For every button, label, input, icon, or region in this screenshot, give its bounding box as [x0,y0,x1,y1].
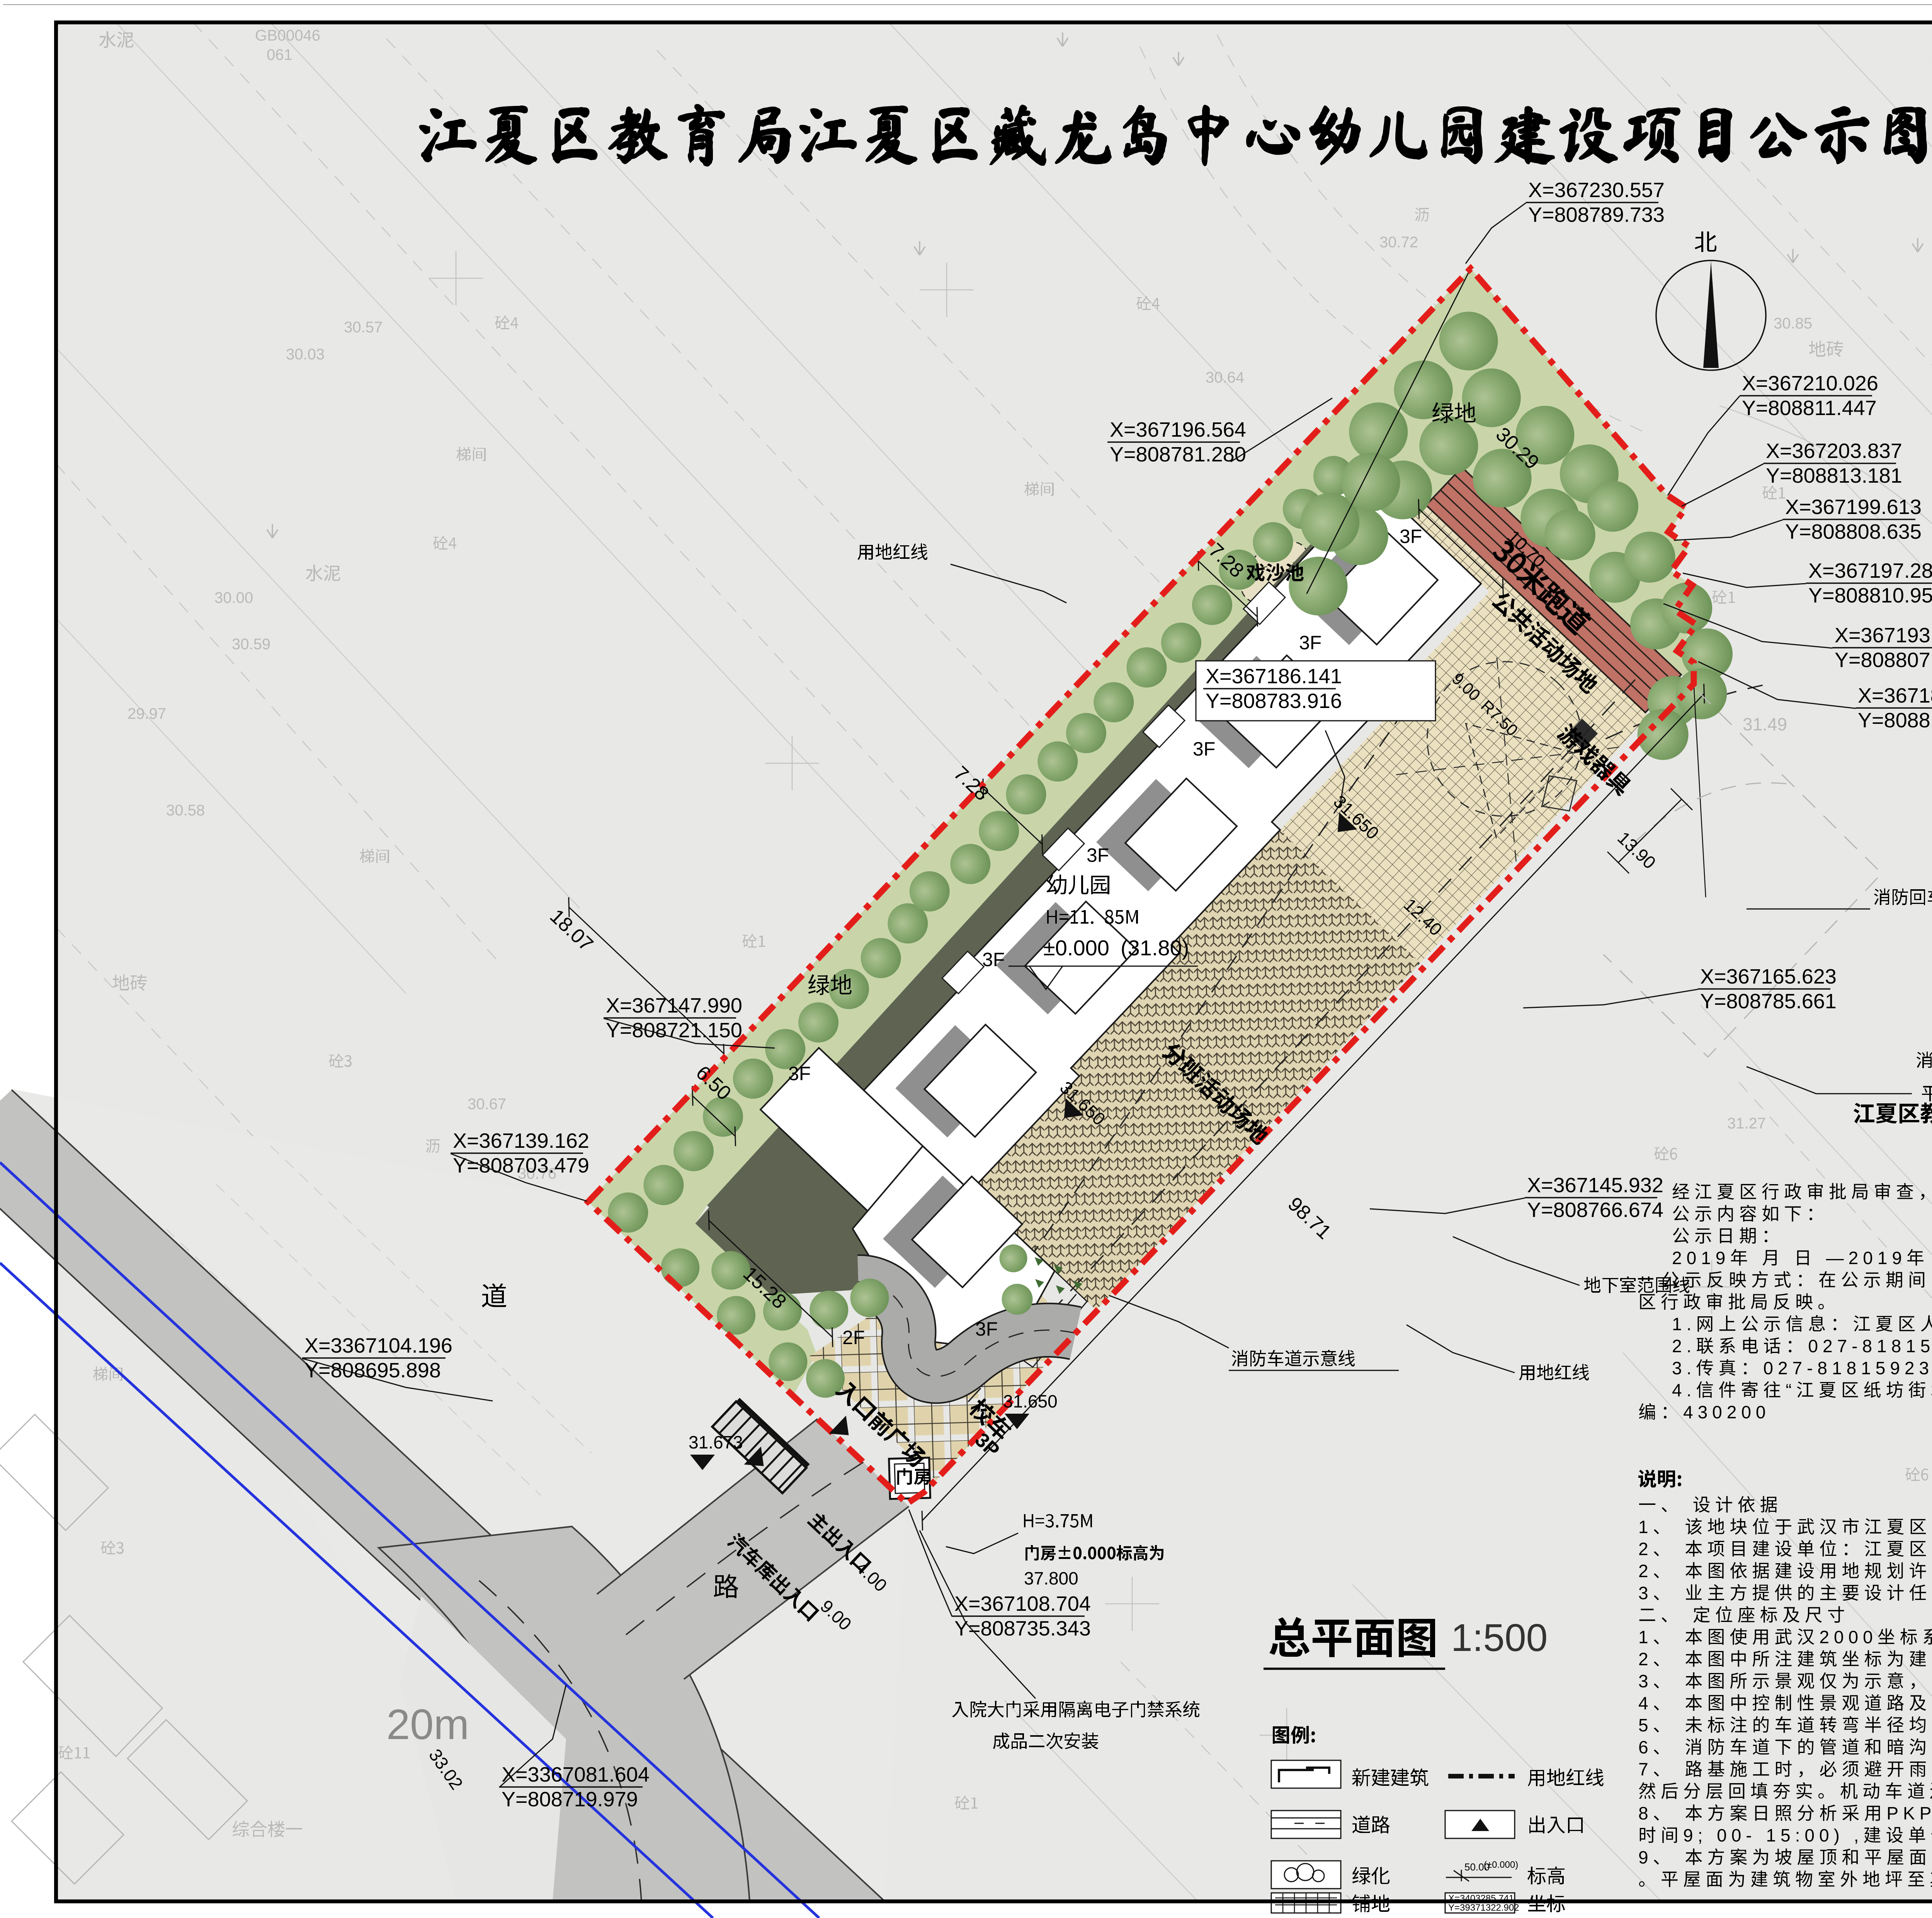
svg-text:30.57: 30.57 [344,319,383,336]
svg-text:Y=808719.979: Y=808719.979 [502,1788,638,1811]
svg-text:3、 本图所示景观仅为示意，景观设计(含道路无障碍设施)不属: 3、 本图所示景观仅为示意，景观设计(含道路无障碍设施)不属于本设计范围。 [1638,1671,1932,1691]
svg-text:公示日期：: 公示日期： [1672,1226,1784,1246]
svg-text:X=367199.613: X=367199.613 [1785,495,1922,519]
svg-text:区行政审批局反映。: 区行政审批局反映。 [1638,1292,1840,1312]
svg-text:31.650: 31.650 [1003,1391,1058,1411]
svg-text:Y=808810.950: Y=808810.950 [1808,584,1932,607]
svg-text:X=3367081.604: X=3367081.604 [502,1763,650,1786]
svg-text:Y=808766.674: Y=808766.674 [1527,1198,1663,1222]
svg-text:Y=808781.280: Y=808781.280 [1110,443,1246,466]
svg-text:31.27: 31.27 [1727,1115,1766,1132]
svg-text:X=3367104.196: X=3367104.196 [304,1334,452,1357]
svg-text:2、 本项目建设单位：江夏区教育局。: 2、 本项目建设单位：江夏区教育局。 [1638,1539,1932,1559]
svg-text:1.网上公示信息：江夏区人民政府网: 1.网上公示信息：江夏区人民政府网 [1672,1314,1932,1334]
svg-text:Y=808811.447: Y=808811.447 [1742,397,1877,420]
svg-text:公示反映方式：在公示期间，有关单位和个人对该项目审批有何意见: 公示反映方式：在公示期间，有关单位和个人对该项目审批有何意见或建议的，可通过以下… [1662,1270,1932,1290]
svg-text:然后分层回填夯实。机动车道边线设置雨水口，雨水口样式、位置及: 然后分层回填夯实。机动车道边线设置雨水口，雨水口样式、位置及数量详见水施相应图纸… [1638,1781,1932,1801]
svg-text:30.64: 30.64 [1206,369,1244,386]
svg-text:Y=808721.150: Y=808721.150 [606,1019,742,1042]
svg-text:编：430200: 编：430200 [1638,1402,1770,1422]
svg-text:2F: 2F [842,1327,865,1348]
svg-text:3.传真：027-81815923（请注明“规划公示”字样）: 3.传真：027-81815923（请注明“规划公示”字样） [1672,1358,1932,1378]
svg-text:30.67: 30.67 [468,1096,506,1113]
svg-text:30.03: 30.03 [286,346,325,363]
svg-text:Y=808789.733: Y=808789.733 [1528,203,1665,226]
svg-text:二、 定位座标及尺寸: 二、 定位座标及尺寸 [1638,1605,1850,1625]
svg-text:30.72: 30.72 [1379,234,1418,251]
svg-text:6、 消防车道下的管道和暗沟等能承受消防车辆的压力。: 6、 消防车道下的管道和暗沟等能承受消防车辆的压力。 [1638,1737,1932,1757]
svg-text:5、 未标注的车道转弯半径均为12米。: 5、 未标注的车道转弯半径均为12米。 [1638,1715,1932,1735]
svg-text:Y=808735.343: Y=808735.343 [954,1617,1091,1640]
svg-text:一、 设计依据: 一、 设计依据 [1638,1495,1782,1515]
svg-text:X=367186.141: X=367186.141 [1206,665,1342,688]
svg-text:2、 本图中所注建筑坐标为建筑轴线交点坐标;与道路相关距离由: 2、 本图中所注建筑坐标为建筑轴线交点坐标;与道路相关距离由建筑轴线算起。 [1638,1649,1932,1669]
svg-text:30.00: 30.00 [214,589,253,606]
svg-text:8、 本方案日照分析采用PKPM SunLight软件分析，: 8、 本方案日照分析采用PKPM SunLight软件分析，幼儿园的主要生活用房… [1638,1803,1932,1823]
svg-text:。平屋面为建筑物室外地坪至其女儿墙顶的高度。: 。平屋面为建筑物室外地坪至其女儿墙顶的高度。 [1638,1869,1932,1889]
svg-text:X=367197.281: X=367197.281 [1808,559,1932,582]
svg-text:1、 该地块位于武汉市江夏区。: 1、 该地块位于武汉市江夏区。 [1638,1517,1932,1537]
svg-text:X=367189.110: X=367189.110 [1858,684,1932,707]
svg-text:1:500: 1:500 [1451,1616,1548,1659]
svg-text:X=367196.564: X=367196.564 [1110,418,1246,441]
svg-text:GB00046: GB00046 [255,27,320,44]
svg-text:30.58: 30.58 [166,802,205,819]
svg-text:X=367147.990: X=367147.990 [606,994,742,1017]
svg-text:7、 路基施工时，必须避开雨季。农田表层耕植土必须清除，遇有: 7、 路基施工时，必须避开雨季。农田表层耕植土必须清除，遇有暗浜或暗河道时，需将… [1638,1759,1932,1779]
svg-text:2.联系电话：027-81815735 胡工 卢工: 2.联系电话：027-81815735 胡工 卢工 [1672,1336,1932,1356]
svg-text:Y=39371322.902: Y=39371322.902 [1448,1903,1519,1913]
svg-text:Y=808783.916: Y=808783.916 [1206,689,1342,713]
svg-text:30.59: 30.59 [232,636,270,653]
svg-text:2、 本图依据建设用地规划许可证及甲方提供的1: 500现状: 2、 本图依据建设用地规划许可证及甲方提供的1: 500现状地形图进行设计。 [1638,1561,1932,1581]
svg-text:3F: 3F [1087,844,1109,866]
svg-text:30.85: 30.85 [1774,315,1812,332]
svg-text:31.49: 31.49 [1743,714,1787,734]
svg-text:(31.80): (31.80) [1121,936,1189,960]
svg-text:Y=808807.239: Y=808807.239 [1835,648,1932,672]
svg-text:3F: 3F [982,949,1005,970]
svg-text:3、 业主方提供的主要设计任务书以及有关地形图、红线图。: 3、 业主方提供的主要设计任务书以及有关地形图、红线图。 [1638,1583,1932,1603]
svg-text:Y=808813.181: Y=808813.181 [1766,464,1902,487]
svg-text:X=367165.623: X=367165.623 [1700,965,1837,988]
svg-text:X=367210.026: X=367210.026 [1742,372,1878,395]
svg-text:±0.000: ±0.000 [1043,936,1109,960]
svg-text:经江夏区行政审批局审查，现对该项目规划总平面方案进行批前公示: 经江夏区行政审批局审查，现对该项目规划总平面方案进行批前公示。 [1672,1182,1932,1202]
svg-text:X=367193.529: X=367193.529 [1835,624,1932,647]
svg-text:X=367139.162: X=367139.162 [453,1129,589,1152]
svg-text:X=367203.837: X=367203.837 [1766,439,1902,463]
svg-text:公示内容如下：: 公示内容如下： [1672,1204,1829,1224]
svg-text:3F: 3F [1400,526,1422,547]
svg-text:Y=808811.977: Y=808811.977 [1858,709,1932,732]
svg-text:3F: 3F [788,1063,811,1084]
svg-text:X=367108.704: X=367108.704 [954,1592,1091,1615]
svg-text:(±0.000): (±0.000) [1484,1860,1518,1870]
svg-text:061: 061 [267,46,293,63]
svg-text:3F: 3F [975,1318,998,1340]
svg-text:20m: 20m [386,1701,469,1748]
svg-text:37.800: 37.800 [1024,1568,1078,1588]
svg-text:X=367230.557: X=367230.557 [1528,179,1665,202]
svg-text:Y=808703.479: Y=808703.479 [453,1154,589,1177]
svg-text:X=367145.932: X=367145.932 [1527,1174,1663,1197]
svg-text:29.97: 29.97 [128,705,166,722]
svg-text:时间9; 00- 15:00) ,建设单位及设计单位对日照结: 时间9; 00- 15:00) ,建设单位及设计单位对日照结果真实性负责。 [1638,1825,1932,1845]
svg-text:4.信件寄往“江夏区纸坊街北华街东10号江夏区行政审批局建设: 4.信件寄往“江夏区纸坊街北华街东10号江夏区行政审批局建设科”（请注明“规划公… [1672,1380,1932,1400]
svg-text:3F: 3F [1299,632,1321,654]
svg-text:Y=808785.661: Y=808785.661 [1700,990,1837,1013]
svg-text:1、 本图使用武汉2000坐标系，所注坐标，标高，距离均以米: 1、 本图使用武汉2000坐标系，所注坐标，标高，距离均以米为单位。 [1638,1627,1932,1647]
svg-text:31.673: 31.673 [689,1432,743,1452]
svg-text:3F: 3F [1193,738,1215,760]
svg-text:Y=808808.635: Y=808808.635 [1785,520,1922,543]
svg-text:4、 本图中控制性景观道路及硬质铺地均满足消防车通行要求。: 4、 本图中控制性景观道路及硬质铺地均满足消防车通行要求。 [1638,1693,1932,1713]
svg-text:2019年 月 日 —2019年 月 日（10个工作: 2019年 月 日 —2019年 月 日（10个工作日） [1672,1248,1932,1268]
svg-text:9、 本方案为坡屋顶和平屋面建筑，建筑高度的计算坡屋顶建筑物: 9、 本方案为坡屋顶和平屋面建筑，建筑高度的计算坡屋顶建筑物室外地面至其檐口高度… [1638,1847,1932,1867]
